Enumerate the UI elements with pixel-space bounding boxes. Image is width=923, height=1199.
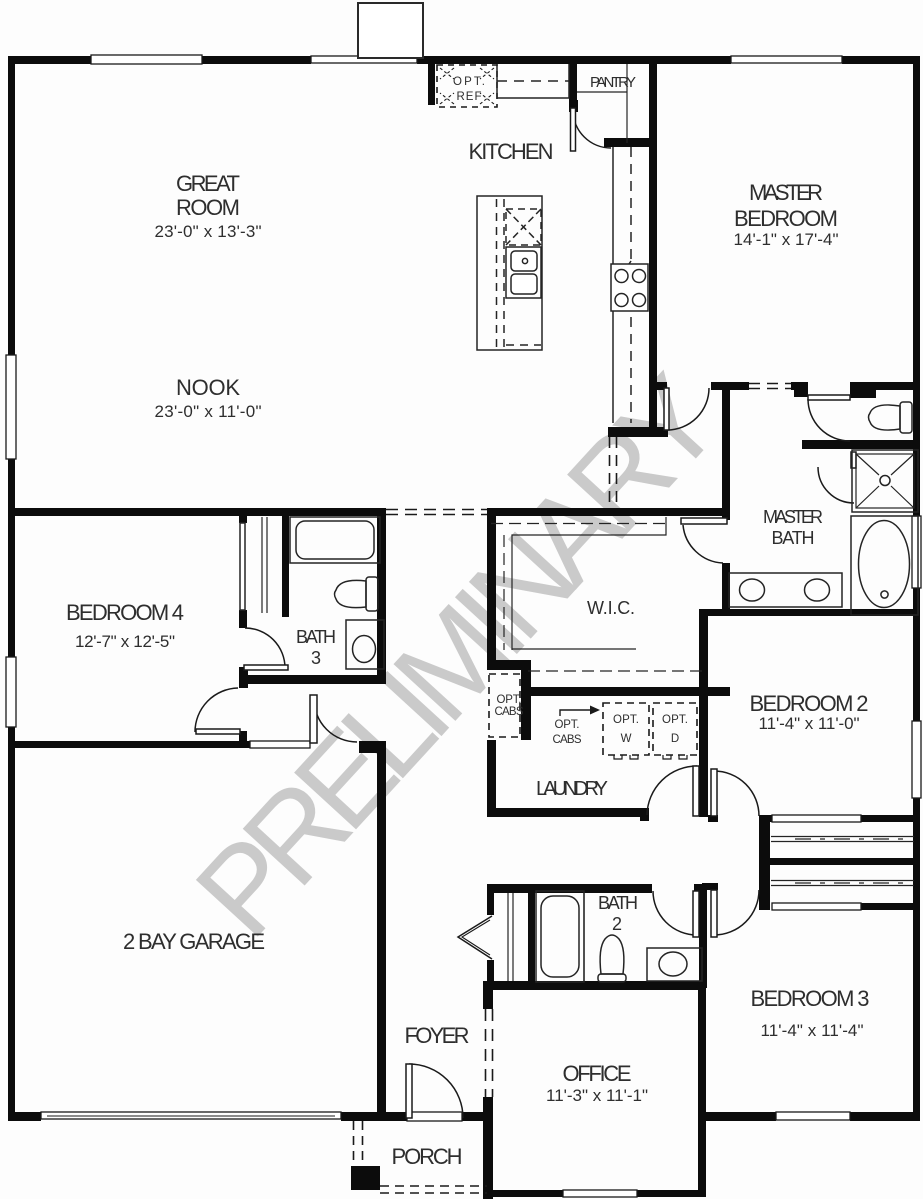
svg-text:2 BAY GARAGE: 2 BAY GARAGE (123, 929, 265, 954)
svg-text:11'-3" x 11'-1": 11'-3" x 11'-1" (546, 1086, 648, 1105)
svg-text:FOYER: FOYER (405, 1023, 470, 1048)
svg-text:KITCHEN: KITCHEN (469, 139, 554, 164)
svg-text:OFFICE: OFFICE (563, 1061, 632, 1086)
svg-text:LAUNDRY: LAUNDRY (536, 778, 608, 800)
svg-text:OPT.: OPT. (613, 714, 639, 726)
svg-text:BATH: BATH (772, 528, 815, 548)
svg-text:2: 2 (612, 914, 622, 934)
svg-text:11'-4" x 11'-0": 11'-4" x 11'-0" (759, 714, 860, 733)
svg-text:BEDROOM: BEDROOM (734, 206, 838, 231)
svg-text:CABS: CABS (553, 734, 582, 746)
svg-text:BATH: BATH (598, 893, 638, 913)
svg-text:GREAT: GREAT (176, 171, 240, 196)
svg-text:BEDROOM 4: BEDROOM 4 (66, 600, 184, 625)
svg-text:D: D (671, 733, 679, 745)
svg-text:OPT.: OPT. (662, 714, 688, 726)
svg-text:MASTER: MASTER (763, 507, 823, 527)
svg-text:23'-0" x 11'-0": 23'-0" x 11'-0" (155, 402, 262, 421)
svg-text:W.I.C.: W.I.C. (587, 598, 635, 618)
svg-text:PORCH: PORCH (392, 1144, 463, 1169)
svg-text:REF: REF (457, 91, 482, 103)
svg-text:PANTRY: PANTRY (590, 74, 636, 91)
svg-text:NOOK: NOOK (176, 375, 240, 400)
svg-text:CABS: CABS (495, 706, 524, 718)
svg-text:BEDROOM 3: BEDROOM 3 (751, 986, 870, 1011)
svg-text:14'-1" x 17'-4": 14'-1" x 17'-4" (734, 230, 839, 249)
svg-text:12'-7" x 12'-5": 12'-7" x 12'-5" (75, 632, 175, 651)
svg-text:OPT.: OPT. (497, 694, 522, 706)
svg-text:11'-4" x 11'-4": 11'-4" x 11'-4" (761, 1021, 864, 1040)
svg-text:W: W (621, 733, 632, 745)
svg-text:23'-0" x 13'-3": 23'-0" x 13'-3" (155, 222, 262, 241)
svg-text:OPT.: OPT. (555, 719, 580, 731)
svg-text:BEDROOM 2: BEDROOM 2 (750, 691, 869, 716)
svg-text:BATH: BATH (296, 627, 336, 647)
svg-text:MASTER: MASTER (749, 180, 823, 205)
svg-text:3: 3 (311, 648, 321, 668)
svg-text:ROOM: ROOM (176, 195, 240, 220)
